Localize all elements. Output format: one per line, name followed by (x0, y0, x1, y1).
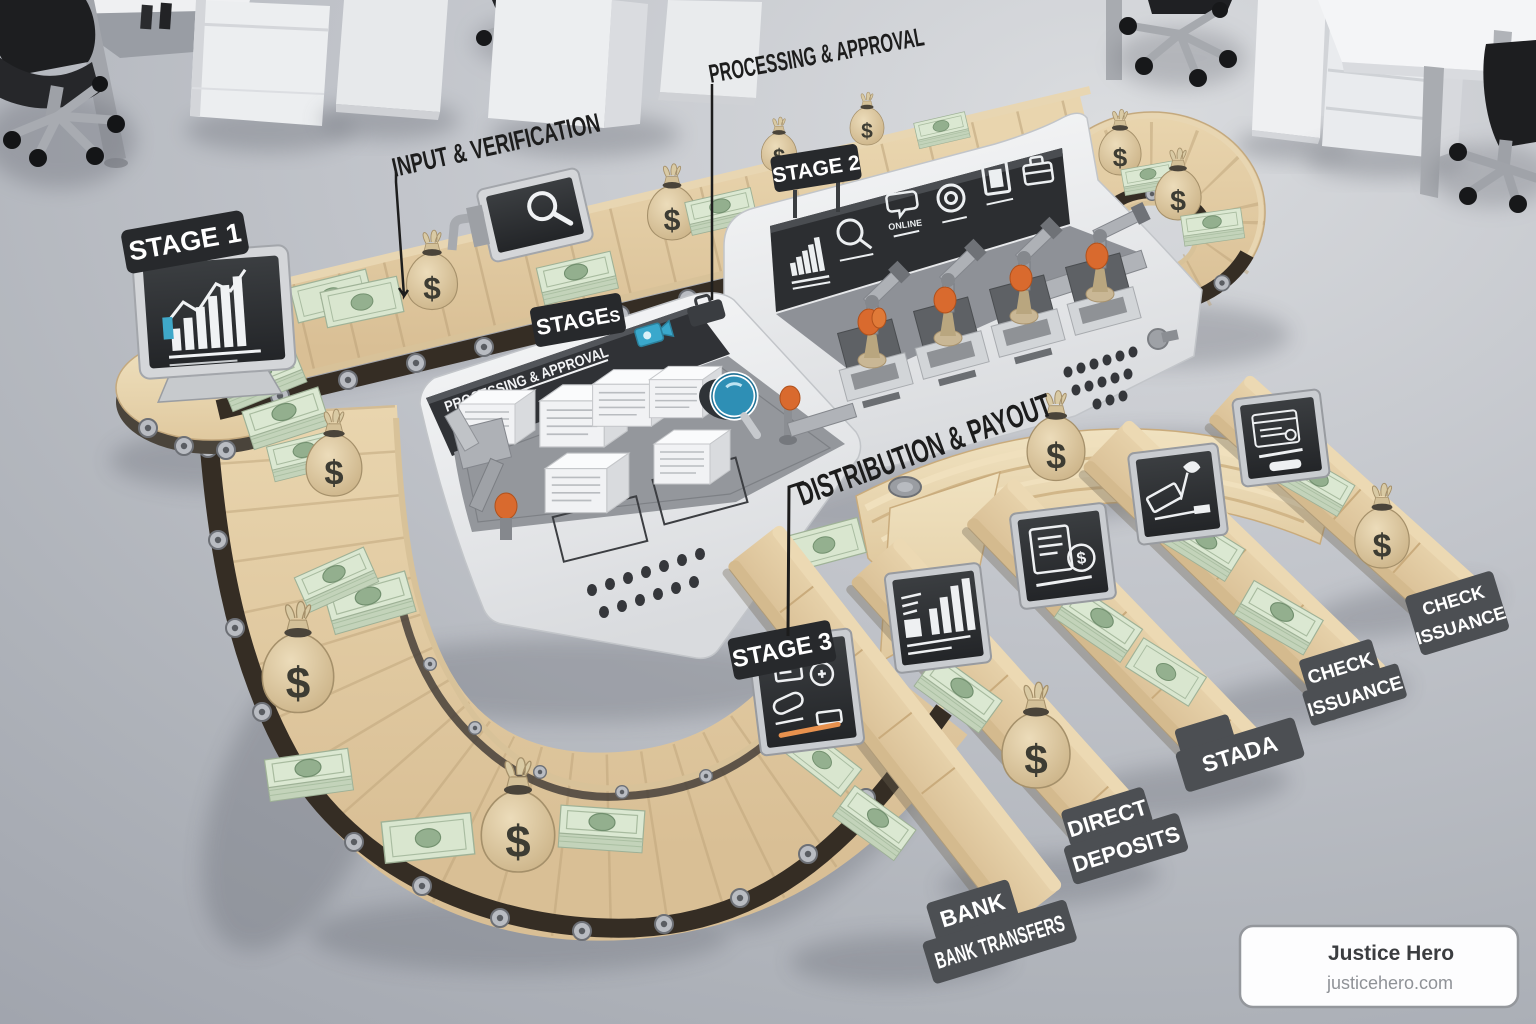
svg-text:Justice Hero: Justice Hero (1328, 942, 1454, 965)
svg-text:justicehero.com: justicehero.com (1326, 973, 1453, 993)
